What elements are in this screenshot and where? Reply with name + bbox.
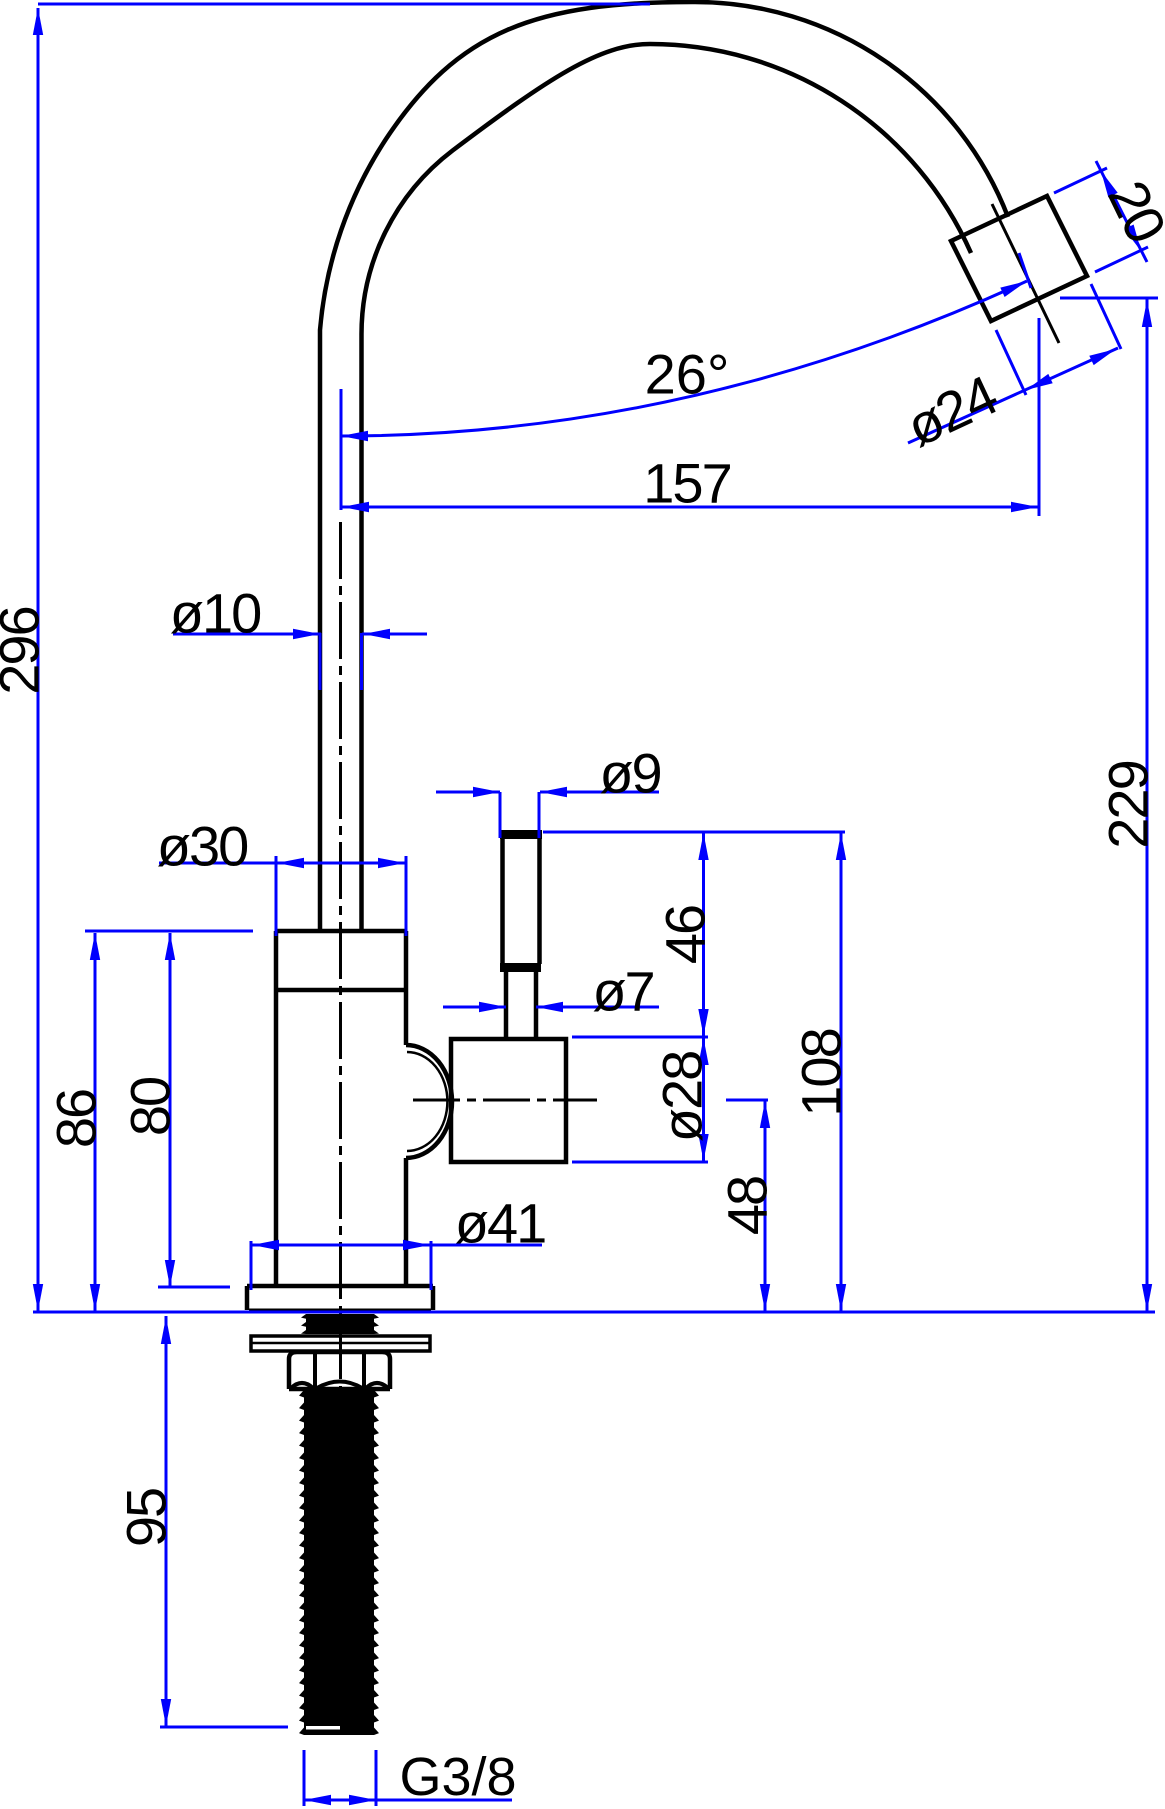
- svg-text:46: 46: [654, 906, 717, 964]
- svg-text:48: 48: [716, 1177, 779, 1235]
- svg-text:296: 296: [0, 607, 51, 694]
- svg-text:95: 95: [115, 1489, 178, 1547]
- svg-text:229: 229: [1097, 761, 1160, 848]
- svg-text:ø28: ø28: [651, 1052, 714, 1143]
- svg-text:ø7: ø7: [592, 960, 653, 1023]
- svg-text:80: 80: [119, 1078, 182, 1136]
- svg-text:ø10: ø10: [170, 582, 261, 645]
- svg-text:26°: 26°: [645, 343, 730, 406]
- svg-text:108: 108: [790, 1029, 853, 1116]
- svg-text:ø30: ø30: [157, 815, 248, 878]
- svg-text:157: 157: [643, 452, 730, 515]
- svg-text:ø41: ø41: [455, 1192, 546, 1255]
- svg-text:ø9: ø9: [599, 742, 660, 805]
- svg-text:G3/8: G3/8: [399, 1747, 516, 1807]
- svg-text:86: 86: [45, 1090, 108, 1148]
